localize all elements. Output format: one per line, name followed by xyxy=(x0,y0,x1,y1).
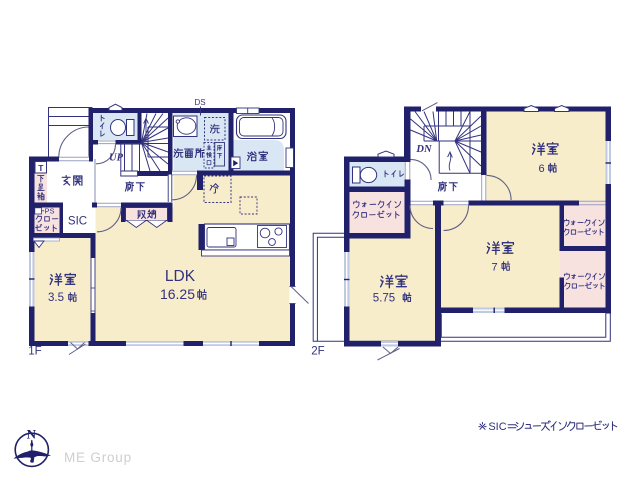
svg-text:PS: PS xyxy=(44,207,54,216)
svg-text:T: T xyxy=(38,163,44,173)
svg-text:SIC: SIC xyxy=(68,216,87,228)
svg-text:LDK: LDK xyxy=(165,268,196,285)
svg-text:7: 7 xyxy=(491,262,497,274)
svg-text:2F: 2F xyxy=(311,346,324,358)
svg-text:5.75: 5.75 xyxy=(373,293,395,305)
svg-text:3.5: 3.5 xyxy=(48,292,64,304)
svg-text:1F: 1F xyxy=(28,346,41,358)
svg-text:ME Group: ME Group xyxy=(64,450,132,465)
svg-text:SIC: SIC xyxy=(488,421,506,433)
svg-text:N: N xyxy=(27,427,37,442)
svg-text:UP: UP xyxy=(109,153,124,164)
svg-text:DN: DN xyxy=(415,144,432,155)
svg-text:6: 6 xyxy=(538,163,544,175)
svg-text:DS: DS xyxy=(194,98,205,107)
svg-text:16.25: 16.25 xyxy=(160,286,195,302)
